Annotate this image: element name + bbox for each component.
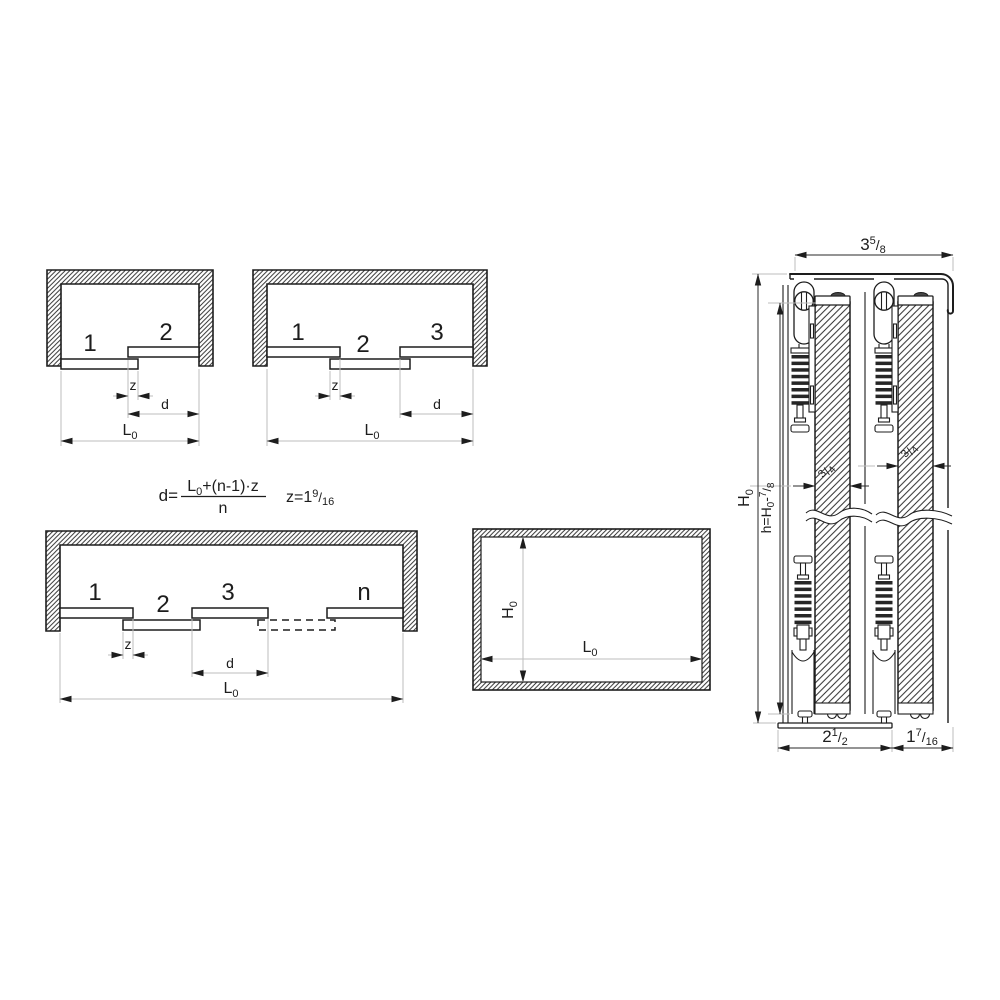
door-panel-2 [330,359,410,369]
panel-top-clamp-right [898,293,933,306]
panel-bottom-shoe-right [898,703,933,719]
sliding-door-technical-drawing: 1 2 z d L0 1 2 3 [0,0,1000,1000]
dim-H0-label: H0 [500,601,520,619]
z-value: z=19/16 [286,488,334,508]
dim-z-label: z [125,636,132,652]
panel-number-label: 2 [156,591,169,618]
vertical-cross-section: 35/8 H0 h=H0-7/8 3/4 3/4 21/2 17/16 [736,235,953,752]
panel-number-label: 1 [88,579,101,606]
formula-lhs: d= [159,486,178,505]
dim-L0-label: L0 [122,422,137,442]
door-panel-1 [267,347,340,357]
panel-number-label: 1 [83,330,96,357]
door-panel-section-left [815,302,850,710]
panel-number-label: 3 [221,579,234,606]
panel-bottom-shoe-left [815,703,850,719]
panel-number-label: 2 [159,319,172,346]
panel-number-label: 1 [291,319,304,346]
dim-bottom-left-label: 21/2 [822,727,848,748]
floor-spring-right [875,556,893,650]
panel-number-label: 2 [356,331,369,358]
suspension-spring-top-left [791,348,809,432]
floor-guide-channel-left [792,650,814,714]
door-panel-3 [192,608,268,618]
door-panel-hidden-dashed [258,620,335,630]
floor-guide-channel-right [873,650,895,714]
floor-spring-left [794,556,812,650]
panel-number-label: n [357,579,370,606]
door-panel-section-right [898,302,933,710]
formula-numerator: L0+(n-1)·z [187,478,258,498]
technical-drawing-page: 1 2 z d L0 1 2 3 [0,0,1000,1000]
dimension-lines: z d L0 [267,359,473,446]
dimension-lines: z d L0 [60,619,403,703]
panel-top-clamp-left [815,293,850,306]
dim-H0-label: H0 [736,489,756,507]
bottom-rail-t-guide-right [877,711,891,723]
door-panel-n [327,608,403,618]
dim-L0-label: L0 [582,639,597,659]
hanger-face-plate-left [809,306,815,412]
door-panel-1 [60,608,133,618]
door-panel-1 [61,359,138,369]
dim-L0-label: L0 [364,422,379,442]
dimension-lines: z d L0 [61,360,199,446]
formula-denominator: n [219,500,228,517]
door-panel-2 [123,620,200,630]
dim-z-label: z [130,377,137,393]
dim-d-label: d [433,396,441,412]
hanger-face-plate-right [892,306,898,412]
plan-n-panel-diagram: 1 2 3 n z d L0 [46,531,417,703]
roller-hanger-assembly-right [874,282,894,348]
dim-L0-label: L0 [223,680,238,700]
dim-h-formula-label: h=H0-7/8 [758,482,777,533]
dim-d-label: d [161,396,169,412]
dim-d-label: d [226,655,234,671]
plan-two-panel-diagram: 1 2 z d L0 [47,270,213,446]
door-panel-2 [128,347,199,357]
plan-three-panel-diagram: 1 2 3 z d L0 [253,270,487,446]
suspension-spring-top-right [875,348,893,432]
dim-track-width-label: 35/8 [860,235,886,256]
bottom-rail-t-guide-left [798,711,812,723]
dim-bottom-right-label: 17/16 [906,727,938,748]
panel-division-formula: d= L0+(n-1)·z n z=19/16 [159,478,335,517]
door-panel-3 [400,347,473,357]
dim-z-label: z [332,377,339,393]
opening-dimensions-diagram: H0 L0 [473,529,710,690]
panel-number-label: 3 [430,319,443,346]
